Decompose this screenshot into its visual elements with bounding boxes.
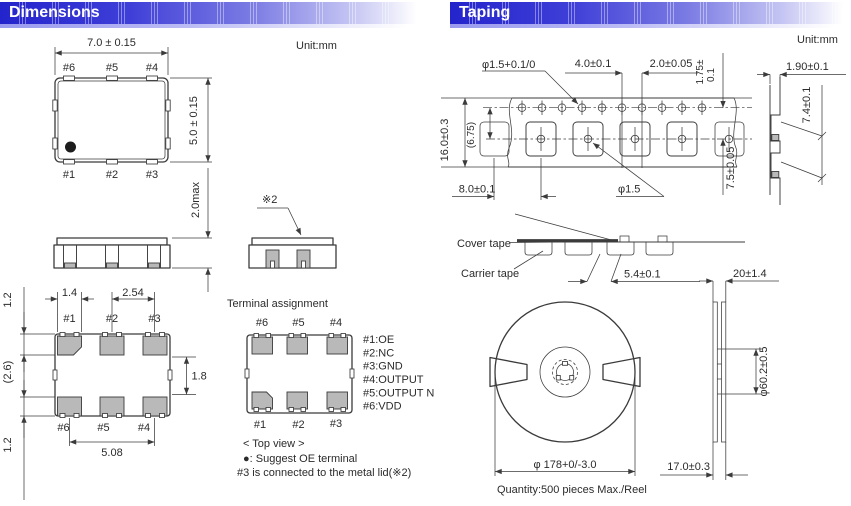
view-caption: < Top view >: [243, 438, 305, 450]
pin-label: #1: [254, 419, 266, 431]
hole-offset-dimension: 2.0±0.05: [650, 58, 693, 70]
terminal-function: #2:NC: [363, 347, 394, 359]
pin-label: #6: [63, 62, 75, 74]
metal-lid-note: #3 is connected to the metal lid(※2): [237, 467, 411, 479]
pin-label: #5: [292, 317, 304, 329]
package-top-view: 7.0 ± 0.15 #6 #5 #4 #1 #2 #3 5.0 ± 0.15: [53, 37, 212, 181]
terminal-function: #5:OUTPUT N: [363, 387, 434, 399]
pin-label: #4: [146, 62, 158, 74]
pin-label: #4: [330, 317, 342, 329]
terminal-function: #1:OE: [363, 334, 394, 346]
hub-diameter-dimension: φ60.2±0.5: [758, 347, 770, 397]
unit-label: Unit:mm: [296, 40, 337, 52]
reel-quantity-note: Quantity:500 pieces Max./Reel: [497, 484, 647, 496]
carrier-tape-label: Carrier tape: [461, 268, 519, 280]
cover-tape-label: Cover tape: [457, 238, 511, 250]
terminal-assignment: Terminal assignment #6 #5 #4 #1:OE #2:NC…: [227, 298, 434, 479]
pad-pitch-dimension: 2.54: [122, 287, 143, 299]
pocket-length-dimension: 5.4±0.1: [624, 269, 661, 281]
lid-reference-note: ※2: [262, 194, 277, 206]
pin-label: #2: [292, 419, 304, 431]
terminal-assignment-title: Terminal assignment: [227, 298, 328, 310]
sprocket-hole-dimension: φ1.5+0.1/0: [482, 59, 535, 71]
height-dimension: 5.0 ± 0.15: [188, 96, 200, 145]
reel-inner-width-dimension: 17.0±0.3: [667, 461, 710, 473]
pad-width-dimension: 1.4: [62, 287, 77, 299]
reel-width-dimension: 20±1.4: [733, 268, 767, 280]
edge-margin-dimension: 1.2: [2, 437, 14, 452]
package-side-views: 2.0max ※2: [54, 168, 336, 292]
edge-margin-dimension: 1.75±: [695, 59, 706, 84]
reel-front-view: φ 178+0/-3.0 Quantity:500 pieces Max./Re…: [490, 302, 647, 496]
pin-label: #6: [256, 317, 268, 329]
pad-span-dimension: 5.08: [101, 447, 122, 459]
tape-top-view: φ1.5+0.1/0 4.0±0.1 2.0±0.05 1.75± 0.1 16…: [439, 53, 752, 200]
edge-margin-dimension: 1.2: [2, 292, 14, 307]
terminal-function: #4:OUTPUT: [363, 374, 424, 386]
package-bottom-view: 1.2 (2.6) 1.2 1.4 2.54 #1 #2 #3 1.8 #6 #…: [2, 287, 207, 500]
terminal-function: #3:GND: [363, 361, 403, 373]
ref-dimension: (6.75): [466, 122, 477, 148]
reel-diameter-dimension: φ 178+0/-3.0: [533, 459, 596, 471]
pocket-pitch-dimension: 8.0±0.1: [459, 184, 496, 196]
pin-label: #2: [106, 313, 118, 325]
center-ref-dimension: (2.6): [2, 361, 14, 384]
tape-side-view: 1.90±0.1 7.4±0.1: [757, 61, 846, 205]
unit-label: Unit:mm: [797, 34, 838, 46]
pin1-marker-dot: [65, 142, 76, 153]
tape-section-view: Cover tape Carrier tape 5.4±0.1: [457, 214, 745, 282]
pin-label: #5: [97, 422, 109, 434]
pocket-offset-dimension: 7.5±0.05: [725, 147, 737, 190]
pin-label: #3: [146, 169, 158, 181]
pin-label: #2: [106, 169, 118, 181]
pin-label: #1: [63, 169, 75, 181]
tape-thickness-dimension: 1.90±0.1: [786, 61, 829, 73]
pin-label: #6: [57, 422, 69, 434]
terminal-function: #6:VDD: [363, 401, 402, 413]
dimensions-drawing: Unit:mm 7.0 ± 0.15 #6 #5 #4 #1 #2 #3 5.0…: [2, 37, 434, 500]
taping-drawing: Unit:mm: [439, 34, 846, 496]
pin-label: #3: [330, 418, 342, 430]
pocket-hole-dimension: φ1.5: [618, 184, 640, 196]
oe-terminal-note: ●: Suggest OE terminal: [243, 453, 357, 465]
tape-width-dimension: 16.0±0.3: [439, 119, 451, 162]
pin-label: #1: [63, 313, 75, 325]
width-dimension: 7.0 ± 0.15: [87, 37, 136, 49]
edge-margin-dimension: 0.1: [706, 68, 717, 82]
pin-label: #3: [148, 313, 160, 325]
tape-height-dimension: 7.4±0.1: [801, 87, 813, 124]
reel-side-view: 20±1.4 φ60.2±0.5 17.0±0.3: [660, 268, 779, 480]
thickness-dimension: 2.0max: [190, 181, 202, 218]
pin-label: #5: [106, 62, 118, 74]
hole-pitch-dimension: 4.0±0.1: [575, 58, 612, 70]
pad-gap-dimension: 1.8: [192, 371, 207, 383]
pin-label: #4: [138, 422, 150, 434]
datasheet-drawing: Unit:mm 7.0 ± 0.15 #6 #5 #4 #1 #2 #3 5.0…: [0, 0, 851, 506]
